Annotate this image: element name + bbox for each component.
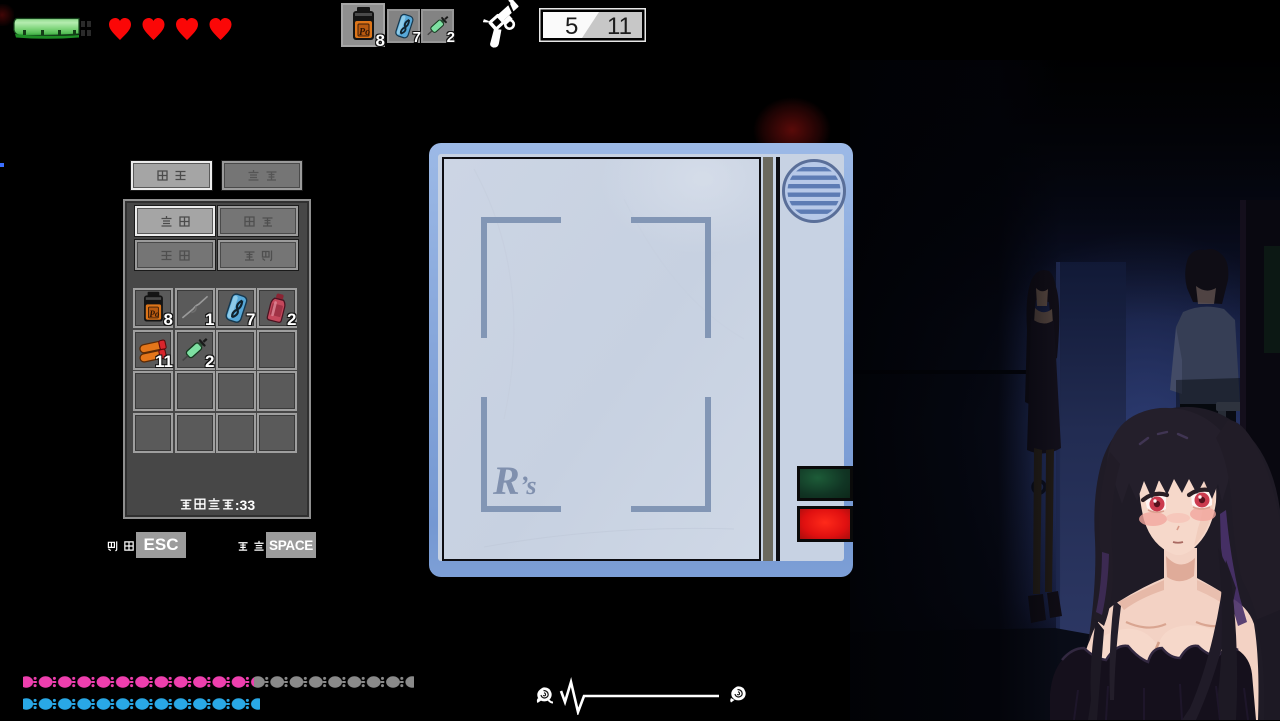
svg-text:Po: Po <box>359 27 370 38</box>
svg-text:Po: Po <box>149 309 159 319</box>
svg-text:5: 5 <box>565 13 578 40</box>
svg-text:11: 11 <box>607 13 632 40</box>
